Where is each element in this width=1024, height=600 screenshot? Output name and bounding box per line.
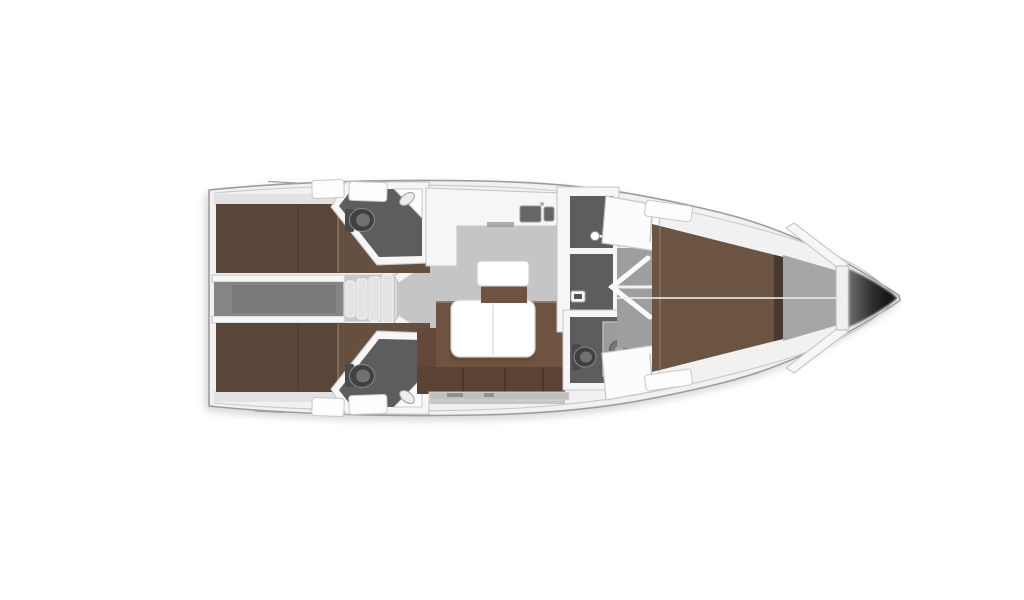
sideboard-detail [484,393,494,397]
double-sink-bowl-left [520,206,541,222]
companionway-steps [344,274,396,323]
engine-compartment [232,285,336,313]
sofa-arm [417,328,436,367]
door-handle [571,291,585,302]
stove-controls [487,222,514,227]
deck-hatch [349,181,388,201]
transom-vent-line [268,182,296,184]
step [382,275,393,323]
corridor-wall-starboard [212,316,346,323]
yacht-floor-plan [0,0,1024,600]
toilet [345,209,375,233]
corridor-wall-port [212,275,346,282]
yacht-floor-plan-canvas [0,0,1024,600]
toilet [345,364,375,388]
double-sink-bowl-right [544,207,554,221]
deck-hatch [312,179,345,198]
deck-hatch [312,397,345,416]
step [346,281,355,317]
step [369,277,380,321]
double-berth [216,204,338,273]
deck-hatch [349,394,388,414]
double-berth [216,323,338,392]
sideboard-detail [447,393,463,397]
step [357,279,367,319]
seat-top [477,261,529,286]
faucet [540,202,544,206]
